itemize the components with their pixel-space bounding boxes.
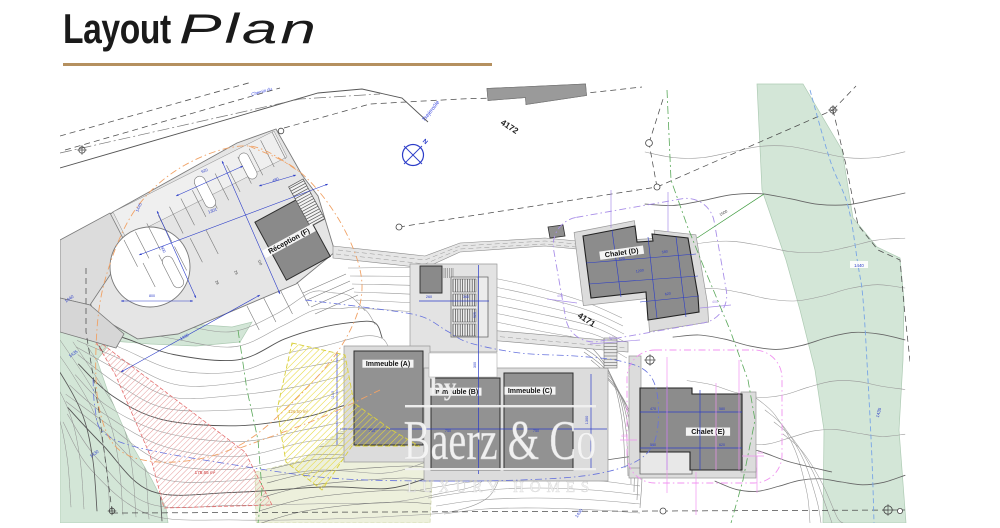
svg-text:400: 400 [757, 451, 763, 455]
svg-text:580: 580 [650, 443, 656, 447]
svg-text:300: 300 [473, 362, 477, 368]
svg-text:Immeuble (C): Immeuble (C) [508, 388, 552, 395]
svg-text:1440: 1440 [854, 263, 864, 268]
svg-text:470: 470 [650, 407, 656, 411]
svg-text:620: 620 [719, 443, 725, 447]
svg-text:LUXURY HOMES: LUXURY HOMES [407, 479, 595, 496]
svg-text:525: 525 [473, 312, 477, 318]
svg-text:800: 800 [149, 294, 155, 298]
svg-text:260: 260 [426, 295, 432, 299]
svg-text:Baerz & Co: Baerz & Co [404, 410, 597, 472]
svg-text:540: 540 [609, 336, 615, 340]
svg-text:by: by [430, 374, 457, 401]
svg-text:400: 400 [712, 300, 718, 304]
svg-text:Chalet (E): Chalet (E) [691, 427, 725, 436]
svg-text:Immeuble (A): Immeuble (A) [366, 361, 410, 368]
svg-text:400: 400 [621, 434, 627, 438]
svg-text:580: 580 [719, 407, 725, 411]
svg-text:175,65 m²: 175,65 m² [195, 470, 216, 475]
svg-text:126,50 m²: 126,50 m² [288, 409, 308, 414]
svg-text:340: 340 [463, 295, 469, 299]
svg-text:400: 400 [557, 294, 563, 298]
